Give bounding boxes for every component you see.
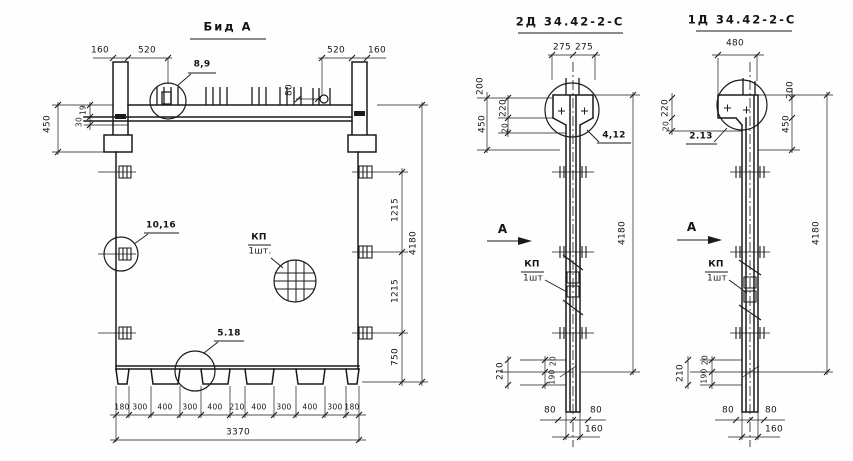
dim-label: 450 [783, 115, 792, 133]
dim-label: 300 [132, 403, 147, 411]
dim-label: 80 [286, 84, 295, 96]
dim-label: 160 [91, 47, 109, 56]
dim-label: 4180 [410, 231, 419, 255]
kp-qty-label: 1шт [707, 275, 727, 284]
dim-label: 210 [229, 403, 244, 411]
dim-label: 520 [327, 47, 345, 56]
view-2d-title: 2Д 34.42-2-С [516, 16, 625, 28]
dim-label: 180 [114, 403, 129, 411]
dim-label: 20 [501, 123, 509, 133]
dim-label: 1215 [392, 279, 401, 303]
kp-qty-label: 1шт. [248, 248, 271, 257]
dim-label: 200 [477, 77, 486, 95]
dim-label: 275 [575, 44, 593, 53]
kp-label: КП [251, 234, 267, 243]
dim-label: 4180 [813, 221, 822, 245]
detail-callout-label: 4,12 [602, 132, 625, 141]
section-arrow-label: А [498, 223, 508, 235]
detail-callout-label: 10,16 [146, 222, 176, 231]
dim-label: 520 [138, 47, 156, 56]
kp-label: КП [524, 261, 540, 270]
dim-label: 19 [79, 105, 87, 115]
view-a-title: Бид А [203, 21, 252, 33]
blueprint-canvas: Бид А 160 520 520 160 8,9 80 450 19 30 1… [0, 0, 853, 461]
dim-label: 80 [722, 407, 734, 416]
dim-label: 4180 [619, 221, 628, 245]
drawing-linework [0, 0, 853, 461]
view-1d-title: 1Д 34.42-2-С [688, 14, 797, 26]
kp-qty-label: 1шт [523, 275, 543, 284]
dim-label: 160 [765, 426, 783, 435]
dim-label: 20 [662, 121, 670, 131]
dim-label: 750 [392, 348, 401, 366]
dim-label: 190 [700, 368, 708, 383]
dim-label: 220 [662, 99, 671, 117]
detail-callout-label: 5.18 [217, 330, 240, 339]
dim-label: 400 [207, 403, 222, 411]
dim-label: 80 [590, 407, 602, 416]
dim-label: 180 [344, 403, 359, 411]
dim-label: 300 [182, 403, 197, 411]
dim-label: 400 [157, 403, 172, 411]
dim-label: 80 [765, 407, 777, 416]
dim-label: 3370 [226, 429, 250, 438]
dim-label: 80 [544, 407, 556, 416]
dim-label: 300 [327, 403, 342, 411]
dim-label: 400 [251, 403, 266, 411]
dim-label: 450 [479, 115, 488, 133]
section-arrow-label: А [687, 221, 697, 233]
dim-label: 160 [585, 426, 603, 435]
dim-label: 480 [726, 40, 744, 49]
detail-callout-label: 2.13 [689, 133, 712, 142]
dim-label: 300 [276, 403, 291, 411]
dim-label: 20 [549, 356, 557, 366]
dim-label: 210 [497, 362, 506, 380]
dim-label: 200 [787, 81, 796, 99]
dim-label: 1215 [392, 198, 401, 222]
kp-label: КП [708, 261, 724, 270]
dim-label: 400 [302, 403, 317, 411]
dim-label: 275 [553, 44, 571, 53]
dim-label: 210 [677, 364, 686, 382]
dim-label: 30 [75, 117, 83, 127]
dim-label: 160 [368, 47, 386, 56]
dim-label: 190 [548, 369, 556, 384]
dim-label: 450 [44, 115, 53, 133]
dim-label: 220 [500, 99, 509, 117]
dim-label: 20 [701, 355, 709, 365]
detail-callout-label: 8,9 [194, 61, 211, 70]
